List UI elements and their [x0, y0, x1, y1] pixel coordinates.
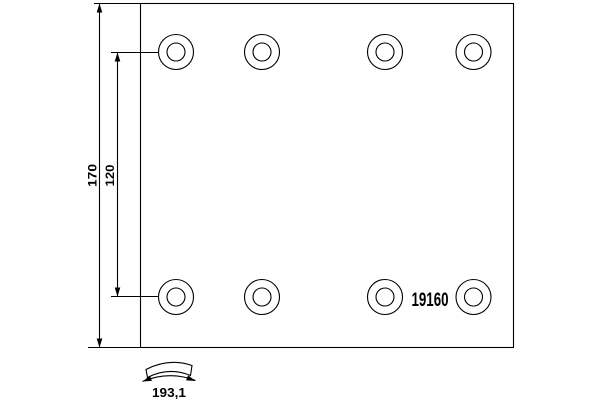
arrowhead-up-icon — [115, 53, 121, 62]
rivet-hole-inner — [167, 288, 185, 306]
rivet-hole-outer — [456, 35, 491, 70]
rivet-hole-inner — [167, 43, 185, 61]
rivet-hole-inner — [376, 43, 394, 61]
arrowhead-down-icon — [97, 339, 103, 348]
arrowhead-down-icon — [115, 288, 121, 297]
drawing-canvas: 170 120 19160 193,1 — [0, 0, 600, 400]
rivet-hole-outer — [159, 35, 194, 70]
dimension-label-170: 170 — [86, 164, 100, 187]
rivet-hole-outer — [159, 280, 194, 315]
rivet-hole-outer — [456, 280, 491, 315]
lining-plate-outline — [141, 4, 514, 348]
rivet-hole-inner — [376, 288, 394, 306]
rivet-hole-outer — [245, 280, 280, 315]
curvature-symbol: 193,1 — [143, 362, 196, 400]
dimension-hole-spacing: 120 — [103, 53, 159, 297]
rivet-hole-inner — [253, 43, 271, 61]
rivet-hole-inner — [465, 288, 483, 306]
rivet-hole-inner — [465, 43, 483, 61]
part-number: 19160 — [412, 290, 449, 311]
brake-lining-technical-drawing: 170 120 19160 193,1 — [0, 0, 600, 400]
arrowhead-up-icon — [97, 4, 103, 13]
rivet-hole-outer — [368, 35, 403, 70]
rivet-holes — [159, 35, 492, 315]
dimension-label-120: 120 — [103, 164, 117, 186]
rivet-hole-inner — [253, 288, 271, 306]
arc-width-label: 193,1 — [152, 385, 186, 400]
rivet-hole-outer — [368, 280, 403, 315]
rivet-hole-outer — [245, 35, 280, 70]
